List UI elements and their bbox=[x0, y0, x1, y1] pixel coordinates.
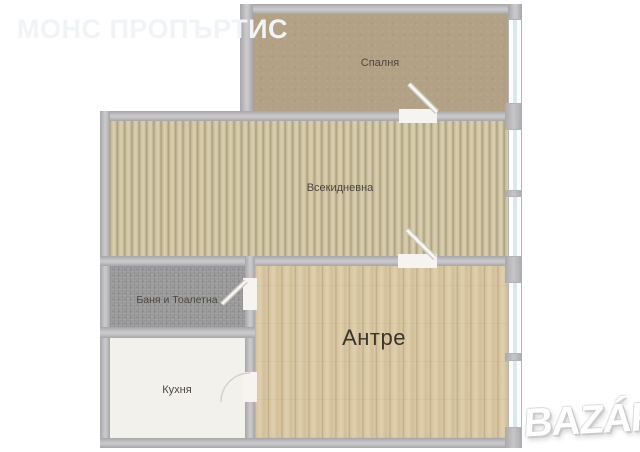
wall-top bbox=[240, 4, 522, 14]
agency-watermark: МОНС ПРОПЪРТИС bbox=[17, 14, 288, 45]
room-bedroom: Спалня bbox=[253, 14, 508, 111]
wall-bottom bbox=[100, 438, 522, 448]
bazar-logo: BAZÁR bbox=[523, 394, 640, 446]
window-living-2 bbox=[509, 197, 521, 256]
window-glass bbox=[513, 130, 517, 190]
door-kitchen bbox=[243, 372, 257, 402]
room-label-kitchen: Кухня bbox=[162, 384, 191, 396]
room-label-bathroom: Баня и Тоалетна bbox=[136, 294, 217, 306]
wall-pier bbox=[505, 103, 522, 130]
door-bedroom bbox=[399, 109, 437, 123]
wall-living-bottom bbox=[100, 256, 522, 266]
floor-plan: Спалня Всекидневна Баня и Тоалетна Кухня… bbox=[0, 0, 640, 452]
room-label-bedroom: Спалня bbox=[361, 57, 399, 69]
window-glass bbox=[513, 197, 517, 256]
window-hall-1 bbox=[509, 283, 521, 353]
window-bedroom bbox=[509, 20, 521, 103]
window-glass bbox=[513, 20, 517, 103]
wall-left bbox=[100, 111, 110, 448]
door-bathroom bbox=[243, 278, 257, 310]
window-living-1 bbox=[509, 130, 521, 190]
door-living bbox=[398, 254, 437, 268]
room-kitchen: Кухня bbox=[110, 338, 245, 438]
wall-pier bbox=[505, 353, 522, 361]
window-glass bbox=[513, 283, 517, 353]
wall-pier bbox=[505, 257, 522, 283]
room-living: Всекидневна bbox=[110, 121, 508, 256]
wall-pier bbox=[505, 427, 522, 448]
wall-bath-kitchen-divider bbox=[100, 327, 255, 338]
room-label-living: Всекидневна bbox=[307, 182, 374, 194]
room-label-entrance-hall: Антре bbox=[342, 325, 406, 351]
window-hall-2 bbox=[509, 361, 521, 427]
room-entrance-hall: Антре bbox=[255, 266, 508, 438]
room-bathroom: Баня и Тоалетна bbox=[110, 266, 245, 327]
wall-pier bbox=[505, 190, 522, 197]
window-glass bbox=[513, 361, 517, 427]
wall-living-top bbox=[100, 111, 522, 121]
